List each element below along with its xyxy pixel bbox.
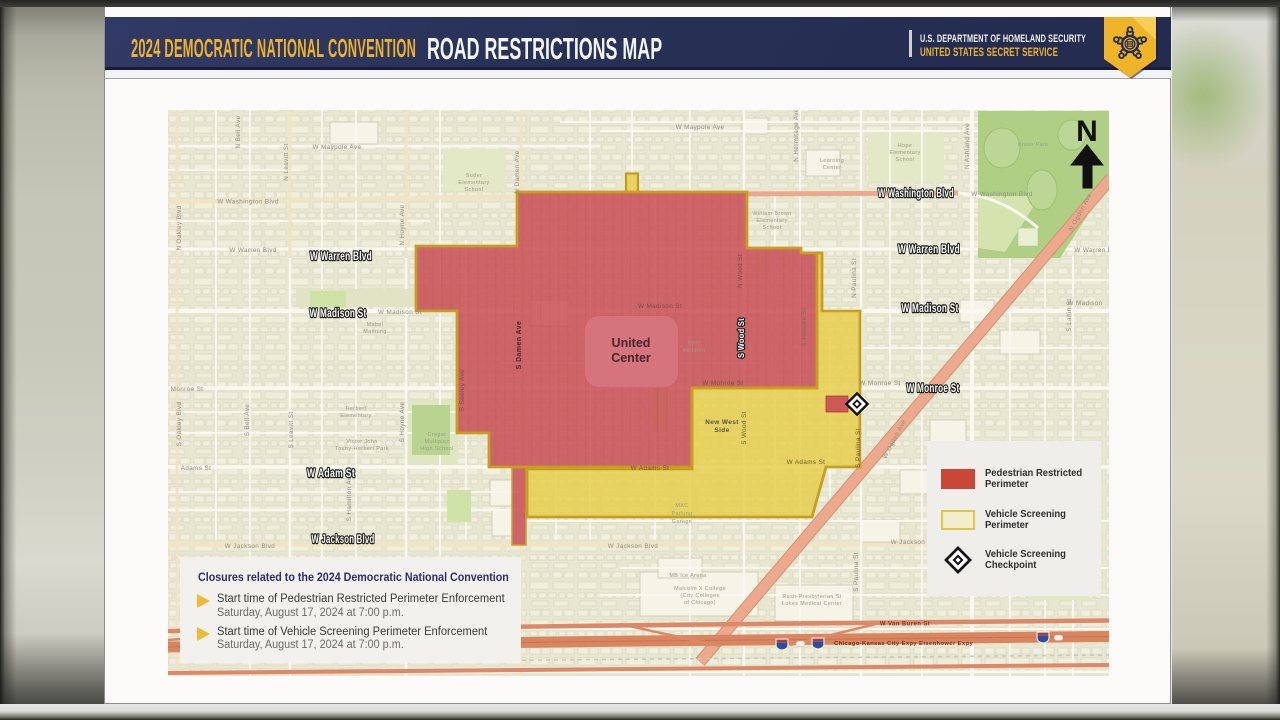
svg-text:W Madison St: W Madison St (902, 303, 959, 315)
svg-text:N Ashland Ave: N Ashland Ave (964, 123, 971, 169)
svg-text:W Warren Blvd: W Warren Blvd (1074, 247, 1109, 254)
svg-text:S Oakley Blvd: S Oakley Blvd (176, 402, 183, 447)
svg-text:(City Colleges: (City Colleges (680, 593, 719, 599)
svg-text:Hope: Hope (898, 143, 913, 149)
svg-text:Rush-Presbyterian St: Rush-Presbyterian St (782, 594, 841, 600)
svg-text:School: School (763, 225, 782, 231)
svg-text:First: First (688, 340, 701, 346)
svg-text:MXC: MXC (675, 503, 688, 509)
svg-text:School: School (465, 187, 484, 193)
svg-text:Touhy-Herbert Park: Touhy-Herbert Park (335, 446, 389, 452)
svg-text:Addition: Addition (683, 348, 706, 354)
svg-text:N Oakley Blvd: N Oakley Blvd (176, 205, 183, 250)
svg-text:Victor John: Victor John (346, 439, 377, 445)
svg-text:Parking: Parking (671, 511, 692, 517)
svg-text:of Chicago): of Chicago) (684, 600, 716, 606)
svg-text:Elementary: Elementary (458, 180, 489, 186)
svg-text:School: School (896, 157, 915, 163)
svg-text:W Adam St: W Adam St (307, 468, 355, 480)
svg-text:Suder: Suder (466, 173, 482, 179)
svg-text:W Madison St: W Madison St (638, 303, 682, 310)
svg-text:W Van Buren St: W Van Buren St (880, 622, 930, 628)
svg-text:N Hoyne Ave: N Hoyne Ave (399, 204, 406, 245)
svg-text:Center: Center (611, 351, 651, 365)
svg-text:W Washington Blvd: W Washington Blvd (217, 199, 279, 206)
svg-text:W Adams St: W Adams St (631, 465, 670, 472)
svg-text:W Maypole Ave: W Maypole Ave (313, 144, 362, 151)
svg-text:W Monroe St: W Monroe St (859, 380, 900, 387)
svg-text:S Damen Ave: S Damen Ave (516, 321, 523, 370)
svg-text:W Jackson Blvd: W Jackson Blvd (312, 534, 375, 546)
svg-text:S Seeley Ave: S Seeley Ave (459, 369, 466, 411)
svg-text:Garage: Garage (672, 519, 692, 525)
svg-text:S Leavitt St: S Leavitt St (288, 411, 295, 448)
svg-text:W Monroe St: W Monroe St (702, 380, 743, 387)
svg-text:Manning: Manning (363, 329, 386, 335)
svg-text:W Washington Blvd: W Washington Blvd (971, 191, 1033, 198)
svg-text:W Madison St: W Madison St (378, 309, 422, 316)
svg-text:Elementary: Elementary (889, 150, 920, 156)
svg-text:Monroe St: Monroe St (171, 386, 204, 393)
svg-text:S Wood St: S Wood St (741, 411, 748, 445)
svg-text:S Paulina St: S Paulina St (855, 428, 862, 467)
svg-text:W Monroe St: W Monroe St (907, 383, 960, 395)
svg-text:S Wood St: S Wood St (737, 318, 746, 358)
svg-text:Mabel: Mabel (367, 322, 384, 328)
svg-text:N: N (1076, 115, 1098, 148)
svg-text:Chicago-Kansas City Expy Eise: Chicago-Kansas City Expy Eisenhower Expy (834, 641, 973, 647)
svg-text:W Maypole Ave: W Maypole Ave (676, 124, 725, 131)
svg-text:S Laflin St: S Laflin St (1066, 298, 1073, 331)
svg-text:High School: High School (420, 446, 453, 452)
svg-text:N Damen Ave: N Damen Ave (514, 150, 521, 193)
svg-text:MB Ice Arena: MB Ice Arena (669, 573, 706, 579)
svg-text:S Paulina St: S Paulina St (853, 552, 860, 591)
svg-text:W Warren Blvd: W Warren Blvd (898, 244, 960, 256)
svg-text:W Warren Blvd: W Warren Blvd (310, 251, 372, 263)
svg-text:Multiplex: Multiplex (425, 439, 450, 445)
svg-text:W Washington Blvd: W Washington Blvd (878, 188, 954, 200)
svg-text:N Leavitt St: N Leavitt St (283, 143, 290, 180)
svg-text:Malcolm X College: Malcolm X College (674, 586, 726, 592)
svg-text:Learning: Learning (820, 158, 844, 164)
svg-text:N Wood St: N Wood St (737, 254, 744, 288)
svg-text:W Madison St: W Madison St (310, 308, 367, 320)
svg-text:N Paulina St: N Paulina St (851, 258, 858, 298)
svg-text:Elementary: Elementary (756, 218, 787, 224)
svg-text:S Hoyne Ave: S Hoyne Ave (399, 402, 406, 443)
svg-text:Center: Center (823, 165, 842, 171)
svg-text:W Warren Blvd: W Warren Blvd (229, 247, 276, 254)
svg-text:Cregar: Cregar (428, 432, 447, 438)
svg-text:Elementary: Elementary (340, 413, 371, 419)
svg-text:W Jackson Blvd: W Jackson Blvd (608, 543, 658, 550)
svg-text:N Bell Ave: N Bell Ave (235, 115, 242, 148)
svg-text:W Jackson: W Jackson (891, 539, 925, 546)
svg-text:Adams St: Adams St (181, 465, 212, 472)
svg-text:N Hermitage Ave: N Hermitage Ave (793, 110, 800, 162)
svg-text:New West: New West (705, 419, 739, 426)
svg-text:S Honore St: S Honore St (801, 308, 808, 347)
svg-text:United: United (612, 336, 651, 350)
svg-text:Herbert: Herbert (346, 406, 367, 412)
svg-text:Side: Side (714, 427, 729, 434)
svg-text:Lukes Medical Center: Lukes Medical Center (782, 601, 842, 607)
svg-text:William Brown: William Brown (752, 211, 791, 217)
svg-text:W Adams St: W Adams St (787, 459, 826, 466)
svg-text:Union Park: Union Park (1018, 142, 1049, 148)
svg-text:W Jackson Blvd: W Jackson Blvd (225, 543, 275, 550)
svg-text:S Bell Ave: S Bell Ave (244, 404, 251, 437)
